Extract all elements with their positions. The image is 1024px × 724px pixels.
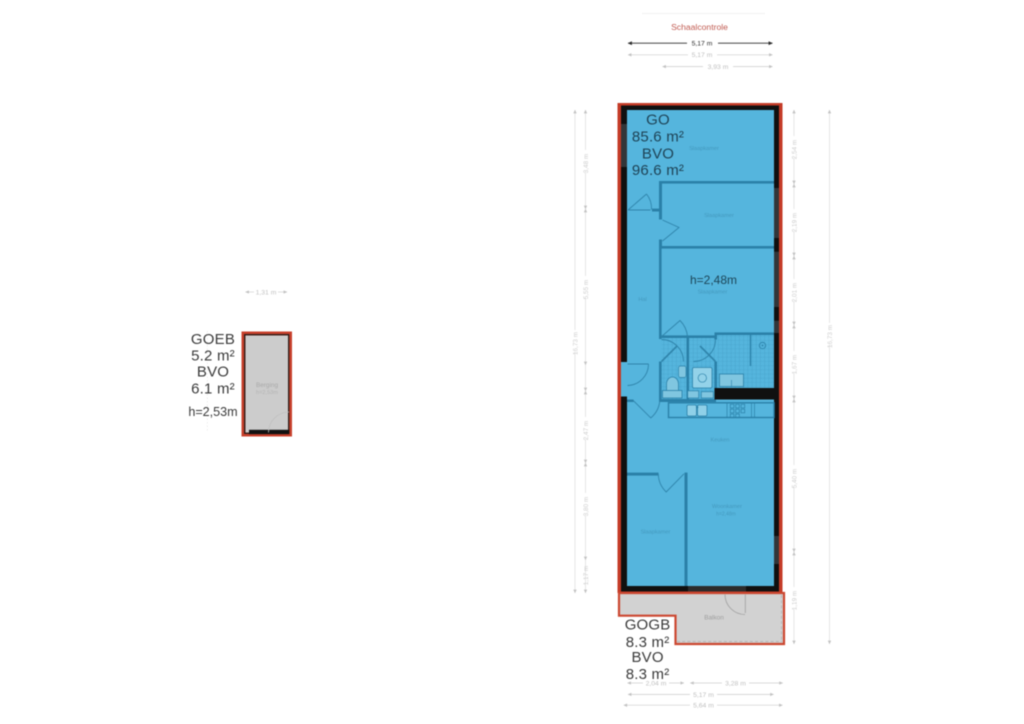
svg-text:h=2,48m: h=2,48m — [690, 273, 737, 287]
svg-text:1,17 m: 1,17 m — [583, 566, 590, 586]
svg-text:h=2,48m: h=2,48m — [716, 511, 736, 517]
svg-text:1,19 m: 1,19 m — [792, 591, 799, 611]
svg-text:5,17 m: 5,17 m — [693, 692, 714, 699]
svg-text:GOGB: GOGB — [625, 617, 671, 634]
svg-text:Slaapkamer: Slaapkamer — [704, 213, 734, 219]
svg-text:5,17 m: 5,17 m — [692, 41, 713, 48]
svg-text:3,93 m: 3,93 m — [708, 64, 729, 71]
svg-text:96.6 m²: 96.6 m² — [632, 162, 684, 179]
svg-text:3,28 m: 3,28 m — [725, 680, 746, 687]
svg-text:16,73 m: 16,73 m — [573, 332, 580, 355]
svg-text:h=2,53m: h=2,53m — [188, 405, 237, 419]
svg-text:Slaapkamer: Slaapkamer — [641, 530, 671, 536]
svg-text:3,48 m: 3,48 m — [583, 154, 590, 174]
svg-text:5,17 m: 5,17 m — [692, 52, 713, 59]
svg-text:2,01 m: 2,01 m — [792, 283, 799, 303]
svg-text:BVO: BVO — [642, 145, 674, 162]
svg-text:h=2,53m: h=2,53m — [256, 390, 278, 396]
svg-text:Slaapkamer: Slaapkamer — [689, 146, 719, 152]
svg-text:2,47 m: 2,47 m — [583, 421, 590, 441]
svg-text:5,64 m: 5,64 m — [693, 703, 714, 710]
svg-text:85.6 m²: 85.6 m² — [632, 129, 684, 146]
svg-text:GO: GO — [646, 112, 670, 129]
svg-text:Slaapkamer: Slaapkamer — [698, 290, 728, 296]
svg-text:Keuken: Keuken — [711, 437, 730, 443]
svg-text:3,80 m: 3,80 m — [583, 497, 590, 517]
svg-text:Schaalcontrole: Schaalcontrole — [671, 22, 728, 32]
svg-text:2,54 m: 2,54 m — [792, 140, 799, 160]
svg-text:BVO: BVO — [631, 649, 663, 666]
svg-text:5,55 m: 5,55 m — [583, 280, 590, 300]
svg-text:5.2 m²: 5.2 m² — [191, 348, 235, 365]
svg-text:Woonkamer: Woonkamer — [712, 504, 742, 510]
svg-text:GOEB: GOEB — [191, 331, 235, 348]
svg-text:2,19 m: 2,19 m — [792, 213, 799, 233]
svg-text:6.1 m²: 6.1 m² — [191, 381, 235, 398]
svg-text:1,31 m: 1,31 m — [256, 289, 277, 296]
svg-text:1,67 m: 1,67 m — [792, 355, 799, 375]
svg-text:BVO: BVO — [197, 364, 229, 381]
svg-text:5,40 m: 5,40 m — [792, 469, 799, 489]
svg-text:Berging: Berging — [256, 382, 278, 389]
svg-text:8.3 m²: 8.3 m² — [626, 666, 670, 683]
svg-text:Hal: Hal — [638, 297, 646, 303]
svg-text:Balkon: Balkon — [704, 614, 724, 621]
svg-text:16,73 m: 16,73 m — [827, 325, 834, 348]
